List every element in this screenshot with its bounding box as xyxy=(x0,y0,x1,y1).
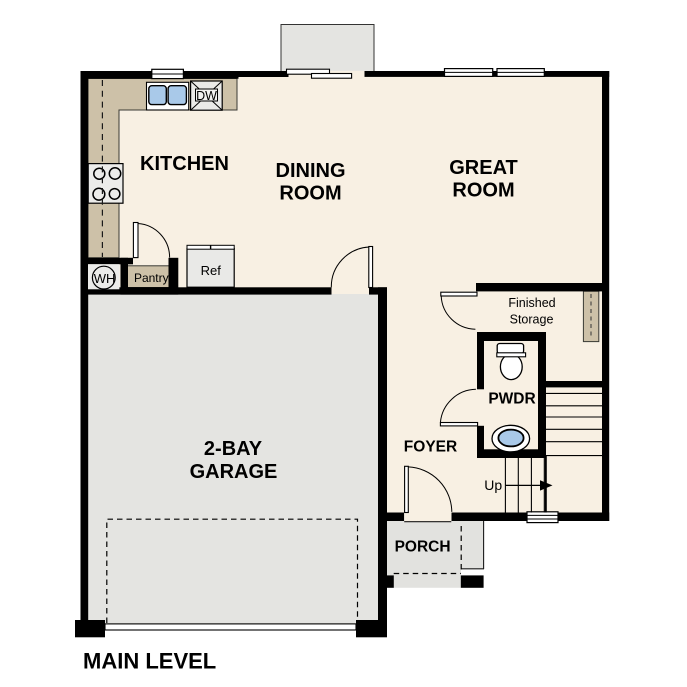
svg-text:Finished: Finished xyxy=(508,296,555,310)
svg-text:ROOM: ROOM xyxy=(279,183,341,205)
svg-text:DINING: DINING xyxy=(276,160,346,182)
svg-text:GREAT: GREAT xyxy=(449,157,518,179)
svg-text:DW: DW xyxy=(196,89,217,103)
svg-text:ROOM: ROOM xyxy=(452,180,514,202)
svg-text:WH: WH xyxy=(94,271,116,286)
svg-text:KITCHEN: KITCHEN xyxy=(140,153,229,175)
svg-text:Ref: Ref xyxy=(201,263,222,278)
svg-text:PWDR: PWDR xyxy=(488,391,535,408)
svg-text:Up: Up xyxy=(484,477,502,493)
svg-text:MAIN LEVEL: MAIN LEVEL xyxy=(83,649,216,674)
svg-text:Pantry: Pantry xyxy=(134,271,169,285)
svg-text:FOYER: FOYER xyxy=(404,438,457,455)
svg-text:PORCH: PORCH xyxy=(395,539,451,556)
svg-text:Storage: Storage xyxy=(510,313,554,327)
svg-text:2-BAY: 2-BAY xyxy=(204,438,263,460)
svg-text:GARAGE: GARAGE xyxy=(190,461,278,483)
